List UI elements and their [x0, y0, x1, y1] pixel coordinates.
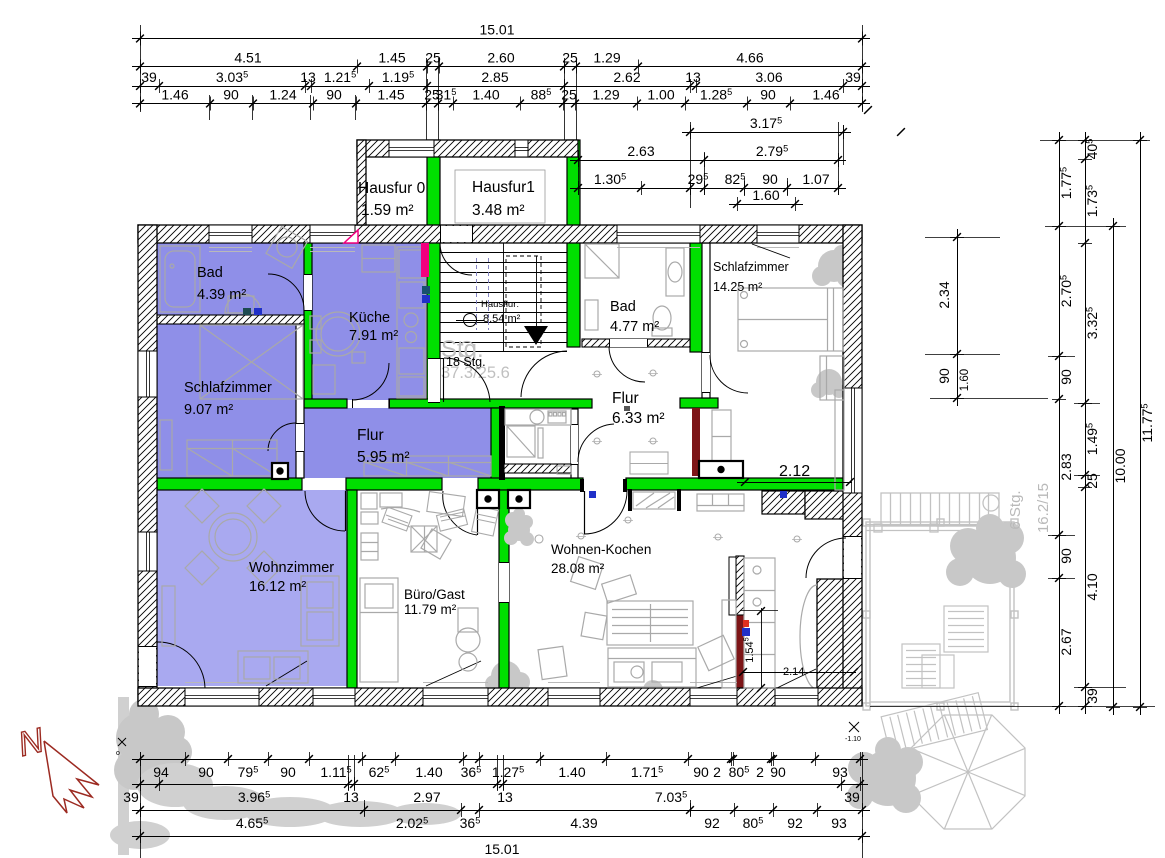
svg-text:1.46: 1.46: [161, 87, 188, 103]
svg-text:90: 90: [936, 368, 952, 384]
svg-text:13: 13: [343, 789, 359, 805]
svg-text:1.40: 1.40: [472, 87, 499, 103]
svg-text:1.29: 1.29: [592, 87, 619, 103]
svg-text:2.62: 2.62: [613, 69, 640, 85]
svg-text:2.34: 2.34: [936, 281, 952, 308]
svg-text:39: 39: [123, 789, 139, 805]
svg-text:2: 2: [756, 764, 764, 780]
svg-text:Küche: Küche: [349, 310, 390, 326]
svg-text:1.40: 1.40: [415, 764, 442, 780]
svg-text:11.775: 11.775: [1139, 403, 1155, 442]
svg-text:1.60: 1.60: [752, 187, 779, 203]
svg-text:2.83: 2.83: [1058, 453, 1074, 480]
svg-text:28.08 m²: 28.08 m²: [551, 561, 605, 576]
svg-text:4.10: 4.10: [1084, 573, 1100, 600]
svg-text:39: 39: [141, 69, 157, 85]
svg-text:Schlafzimmer: Schlafzimmer: [713, 260, 789, 274]
svg-text:1.46: 1.46: [812, 87, 839, 103]
svg-text:1.24: 1.24: [269, 87, 296, 103]
svg-text:13: 13: [497, 789, 513, 805]
svg-text:4.39 m²: 4.39 m²: [197, 287, 246, 303]
svg-text:90: 90: [770, 764, 786, 780]
svg-text:Bad: Bad: [610, 299, 636, 315]
svg-text:9.07 m²: 9.07 m²: [184, 402, 233, 418]
svg-text:39: 39: [1084, 688, 1100, 704]
svg-text:5.95 m²: 5.95 m²: [357, 449, 410, 466]
svg-text:2.67: 2.67: [1058, 628, 1074, 655]
svg-text:90: 90: [693, 764, 709, 780]
svg-text:90: 90: [223, 87, 239, 103]
svg-text:93: 93: [832, 764, 848, 780]
svg-text:2.60: 2.60: [487, 50, 514, 66]
svg-text:Hausflur:: Hausflur:: [481, 299, 519, 310]
svg-text:2.85: 2.85: [481, 69, 508, 85]
svg-text:2.12: 2.12: [779, 463, 810, 480]
svg-text:25: 25: [561, 87, 577, 103]
svg-text:16.2/15: 16.2/15: [1035, 483, 1052, 533]
svg-text:93: 93: [831, 815, 847, 831]
svg-text:13: 13: [685, 69, 701, 85]
svg-text:11.79 m²: 11.79 m²: [404, 602, 457, 617]
svg-text:1.07: 1.07: [802, 171, 829, 187]
svg-text:90: 90: [760, 87, 776, 103]
svg-text:14.25 m²: 14.25 m²: [713, 280, 762, 294]
svg-text:Büro/Gast: Büro/Gast: [404, 587, 465, 602]
svg-text:90: 90: [198, 764, 214, 780]
svg-text:92: 92: [787, 815, 803, 831]
svg-text:4.39: 4.39: [570, 815, 597, 831]
svg-text:39: 39: [844, 789, 860, 805]
svg-text:Wohnzimmer: Wohnzimmer: [249, 560, 334, 576]
svg-text:Flur: Flur: [357, 427, 384, 444]
svg-text:6.33 m²: 6.33 m²: [612, 410, 665, 427]
svg-text:15.01: 15.01: [484, 841, 519, 857]
svg-text:2.14: 2.14: [783, 666, 804, 678]
svg-text:2.63: 2.63: [627, 143, 654, 159]
svg-text:15.01: 15.01: [479, 22, 514, 38]
svg-text:37.3/25.6: 37.3/25.6: [441, 364, 510, 382]
svg-text:3.06: 3.06: [755, 69, 782, 85]
svg-text:90: 90: [326, 87, 342, 103]
svg-text:4.51: 4.51: [234, 50, 261, 66]
svg-text:90: 90: [1058, 548, 1074, 564]
svg-text:6 Stg.: 6 Stg.: [1007, 490, 1024, 529]
svg-text:Schlafzimmer: Schlafzimmer: [184, 380, 272, 396]
svg-text:Wohnen-Kochen: Wohnen-Kochen: [551, 542, 651, 557]
svg-text:92: 92: [704, 815, 720, 831]
svg-text:o: o: [116, 750, 120, 757]
svg-text:Hausfur 0: Hausfur 0: [358, 180, 426, 197]
svg-text:13: 13: [300, 69, 316, 85]
svg-text:16.12 m²: 16.12 m²: [249, 579, 306, 595]
svg-text:1.59 m²: 1.59 m²: [361, 202, 414, 219]
svg-text:1.45: 1.45: [377, 87, 404, 103]
svg-text:4.66: 4.66: [736, 50, 763, 66]
svg-text:1.29: 1.29: [593, 50, 620, 66]
svg-text:-1.10: -1.10: [845, 736, 861, 743]
svg-text:3.48 m²: 3.48 m²: [472, 202, 525, 219]
svg-text:1.60: 1.60: [959, 369, 971, 391]
svg-text:1.45: 1.45: [378, 50, 405, 66]
svg-text:8.54 m²: 8.54 m²: [483, 313, 521, 325]
svg-text:Flur: Flur: [612, 390, 639, 407]
svg-text:1.40: 1.40: [558, 764, 585, 780]
svg-text:2.97: 2.97: [413, 789, 440, 805]
svg-text:1.00: 1.00: [647, 87, 674, 103]
svg-text:7.91 m²: 7.91 m²: [349, 328, 398, 344]
svg-text:4.77 m²: 4.77 m²: [610, 319, 659, 335]
svg-text:39: 39: [845, 69, 861, 85]
svg-text:90: 90: [1058, 369, 1074, 385]
svg-text:90: 90: [280, 764, 296, 780]
svg-text:90: 90: [762, 171, 778, 187]
svg-text:2: 2: [713, 764, 721, 780]
svg-text:94: 94: [153, 764, 169, 780]
svg-text:10.00: 10.00: [1112, 448, 1128, 483]
svg-text:Bad: Bad: [197, 265, 223, 281]
svg-text:Hausfur1: Hausfur1: [472, 179, 535, 196]
